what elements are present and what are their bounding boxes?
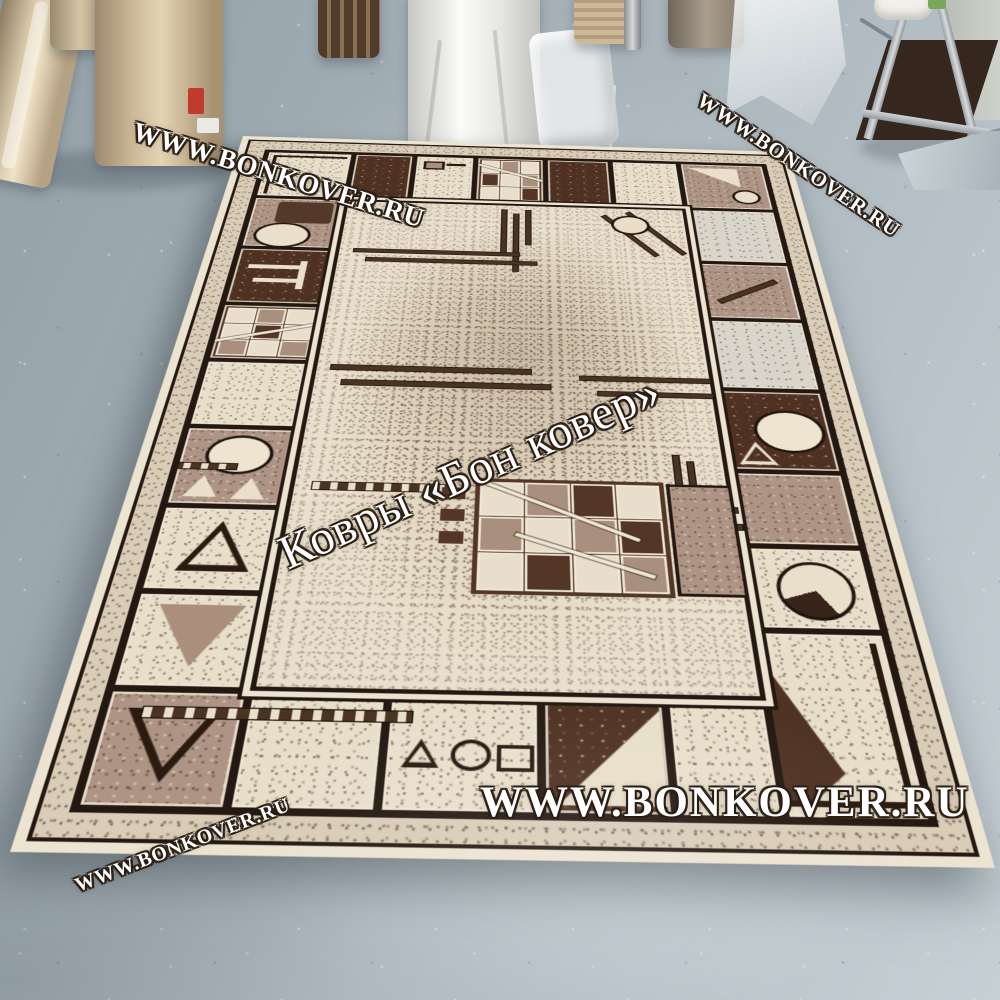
window-pane <box>482 174 498 185</box>
carpet-roll-carved <box>318 0 380 58</box>
rug-cell-window-top <box>473 157 546 205</box>
circle-motif <box>750 410 830 454</box>
rug-cell-right-grey <box>686 209 790 265</box>
string-spool <box>874 0 932 20</box>
rug-cell-top-cream <box>610 161 686 209</box>
window-grid-large-motif <box>471 478 676 598</box>
window-pane <box>502 175 518 186</box>
roll-red-label <box>188 88 204 114</box>
small-circle-icon <box>450 739 492 771</box>
rug-cell-right-slash <box>694 262 804 321</box>
rug-cell-window-left <box>206 303 325 362</box>
photo-scene: WWW.BONKOVER.RU WWW.BONKOVER.RU Ковры «Б… <box>0 0 1000 1000</box>
cream-dash <box>252 278 301 283</box>
window-pane <box>227 309 255 322</box>
cream-dash <box>248 264 306 269</box>
window-pane <box>528 555 570 590</box>
rug-cell-right-circle-block <box>715 389 843 473</box>
window-pane <box>218 340 247 354</box>
small-square-icon <box>497 745 535 772</box>
window-pane <box>573 485 614 516</box>
pie-circle-motif <box>772 561 863 621</box>
rug-cell-left-circle-tris <box>164 426 301 508</box>
slash-motif <box>717 279 779 304</box>
rug-cell-left-triangle-outline <box>138 505 285 594</box>
circle-motif <box>731 190 763 205</box>
triangle-outline-motif <box>174 520 259 572</box>
mini-window-icon <box>423 161 445 170</box>
window-pane <box>257 310 285 323</box>
rug-cell-wedge-circle <box>741 546 885 633</box>
window-pane <box>618 486 660 517</box>
triangle-motif <box>688 168 740 187</box>
window-pane <box>502 188 518 200</box>
rug-cell-top-brown2 <box>545 159 614 207</box>
rug-cell-right-grey2 <box>704 319 823 392</box>
window-pane <box>522 188 538 200</box>
rug-cell-top-icons <box>409 155 476 202</box>
window-pane <box>522 162 537 173</box>
window-pane <box>482 187 498 199</box>
rug-cell-left-dashes <box>223 247 336 306</box>
triangle-motif <box>143 604 247 667</box>
rug-cell-right-taupe <box>729 471 863 548</box>
rug-cell-corner-tr <box>678 163 776 211</box>
rug-cell-left-cream <box>187 359 314 428</box>
window-pane <box>249 341 278 355</box>
vertical-stick <box>500 209 508 253</box>
window-pane <box>287 310 314 323</box>
mini-bar-icon <box>446 164 465 167</box>
roll-white-label <box>197 118 219 133</box>
triangle-motif <box>230 478 268 500</box>
window-pane <box>280 342 308 356</box>
circle-motif <box>250 222 313 248</box>
triangle-motif <box>182 475 221 497</box>
metal-pole <box>624 0 641 50</box>
dashed-bar <box>164 461 239 470</box>
motif-tooth <box>438 531 463 544</box>
plastic-bag <box>528 26 620 152</box>
watermark-bottom-center: WWW.BONKOVER.RU <box>480 778 970 827</box>
vertical-stick <box>525 210 532 245</box>
small-triangle-icon <box>401 738 441 768</box>
green-tape <box>928 0 946 9</box>
rug-cell-left-filled-triangle <box>110 591 269 691</box>
window-pane <box>479 554 522 589</box>
